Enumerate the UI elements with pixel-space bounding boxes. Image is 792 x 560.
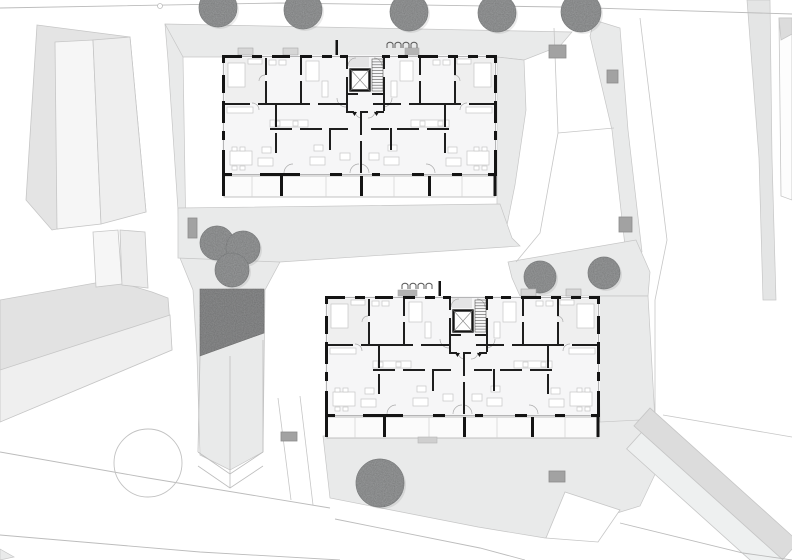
- furniture-item: [467, 151, 489, 165]
- exterior-wall: [485, 296, 493, 299]
- furniture-item: [369, 153, 379, 160]
- exterior-wall: [597, 342, 600, 364]
- furniture-item: [314, 145, 323, 151]
- exterior-wall: [418, 55, 438, 58]
- interior-wall: [362, 111, 368, 113]
- furniture-item: [560, 300, 574, 305]
- interior-wall: [557, 322, 559, 344]
- furniture-item: [491, 386, 500, 392]
- exterior-wall: [222, 75, 225, 93]
- furniture-item: [413, 398, 428, 406]
- interior-wall: [346, 111, 354, 113]
- interior-wall: [444, 105, 446, 127]
- interior-wall: [547, 346, 549, 368]
- interior-wall: [330, 128, 348, 130]
- bench: [549, 471, 565, 482]
- exterior-wall: [325, 342, 328, 364]
- furniture-item: [443, 60, 450, 65]
- building-2: [325, 281, 600, 443]
- furniture-item: [523, 362, 528, 367]
- furniture-item: [577, 304, 594, 328]
- balcony-divider: [222, 176, 225, 196]
- interior-wall: [479, 352, 487, 354]
- interior-wall: [463, 382, 465, 414]
- furniture-item: [446, 158, 461, 166]
- furniture-item: [474, 63, 491, 87]
- exterior-wall: [494, 131, 497, 140]
- furniture-item: [232, 166, 237, 170]
- neighbor-building-left-wing-b: [120, 230, 148, 288]
- exterior-wall: [448, 55, 458, 58]
- furniture-item: [546, 301, 553, 306]
- furniture-item: [382, 301, 389, 306]
- interior-wall: [474, 369, 492, 371]
- exterior-wall: [452, 173, 462, 176]
- exterior-wall: [322, 55, 332, 58]
- interior-wall: [346, 77, 348, 111]
- interior-wall: [463, 352, 465, 376]
- furniture-item: [417, 386, 426, 392]
- furniture-item: [551, 388, 560, 394]
- balcony-divider: [360, 176, 363, 196]
- interior-wall: [346, 58, 348, 69]
- furniture-item: [365, 388, 374, 394]
- entrance-canopy: [566, 289, 581, 296]
- furniture-item: [396, 362, 401, 367]
- furniture-item: [474, 166, 479, 170]
- furniture-item: [443, 394, 453, 401]
- furniture-item: [343, 388, 348, 392]
- interior-wall: [300, 81, 302, 103]
- site-plan-page: [0, 0, 792, 560]
- furniture-item: [577, 388, 582, 392]
- bench: [607, 70, 618, 83]
- exterior-wall: [403, 296, 415, 299]
- entrance-canopy: [398, 290, 417, 296]
- tree: [215, 253, 249, 287]
- balcony-divider: [463, 417, 466, 437]
- furniture-item: [230, 151, 252, 165]
- interior-wall: [275, 133, 277, 153]
- furniture-item: [335, 407, 340, 411]
- interior-wall: [300, 128, 322, 130]
- furniture-item: [585, 407, 590, 411]
- interior-wall: [329, 128, 331, 150]
- furniture-item: [570, 392, 592, 406]
- furniture-item: [409, 302, 422, 322]
- furniture-item: [438, 121, 443, 126]
- interior-wall: [373, 369, 395, 371]
- exterior-wall: [375, 296, 393, 299]
- furniture-item: [466, 107, 492, 113]
- furniture-item: [333, 392, 355, 406]
- furniture-item: [482, 166, 487, 170]
- entrance-canopy: [238, 48, 253, 55]
- exterior-wall: [272, 55, 290, 58]
- furniture-item: [448, 147, 457, 153]
- exterior-wall: [571, 296, 581, 299]
- furniture-item: [400, 61, 413, 81]
- interior-wall: [493, 369, 495, 391]
- exterior-wall: [222, 131, 225, 140]
- interior-wall: [360, 141, 362, 173]
- balcony-divider: [280, 176, 283, 196]
- exterior-wall: [494, 150, 497, 176]
- balcony-band: [224, 176, 495, 197]
- interior-wall: [475, 334, 487, 336]
- interior-wall: [454, 81, 456, 103]
- balcony-doormat: [418, 437, 437, 443]
- exterior-wall: [222, 101, 225, 123]
- furniture-item: [577, 407, 582, 411]
- entrance-canopy: [405, 48, 419, 55]
- furniture-item: [549, 399, 564, 407]
- entrance-canopy: [521, 289, 536, 296]
- interior-wall: [530, 369, 552, 371]
- furniture-item: [388, 145, 397, 151]
- interior-wall: [328, 344, 353, 346]
- exterior-wall: [382, 55, 390, 58]
- exterior-wall: [325, 296, 328, 304]
- furniture-item: [258, 158, 273, 166]
- interior-wall: [454, 58, 456, 75]
- furniture-item: [279, 60, 286, 65]
- exterior-wall: [260, 173, 300, 176]
- furniture-item: [391, 81, 397, 97]
- neighbor-building-far-right: [779, 18, 792, 200]
- interior-wall: [397, 128, 419, 130]
- interior-wall: [465, 352, 471, 354]
- furniture-item: [541, 362, 546, 367]
- tree: [588, 257, 620, 289]
- interior-wall: [275, 105, 277, 127]
- interior-wall: [522, 322, 524, 344]
- exterior-wall: [363, 414, 403, 417]
- exterior-wall: [494, 101, 497, 123]
- interior-wall: [270, 128, 292, 130]
- balcony-divider: [325, 417, 328, 437]
- exterior-wall: [494, 55, 497, 63]
- interior-wall: [376, 111, 384, 113]
- furniture-item: [310, 157, 325, 165]
- furniture-item: [585, 388, 590, 392]
- interior-wall: [421, 344, 449, 346]
- interior-wall: [572, 344, 597, 346]
- interior-wall: [403, 322, 405, 344]
- exterior-wall: [494, 75, 497, 93]
- exterior-wall: [521, 296, 541, 299]
- exterior-wall: [325, 372, 328, 381]
- tree: [356, 459, 404, 507]
- furniture-item: [474, 147, 479, 151]
- interior-wall: [383, 58, 385, 69]
- furniture-item: [536, 301, 543, 306]
- balcony-divider: [494, 176, 497, 196]
- interior-wall: [469, 103, 494, 105]
- exterior-wall: [425, 296, 435, 299]
- furniture-item: [494, 322, 500, 338]
- interior-wall: [419, 81, 421, 103]
- interior-wall: [433, 369, 451, 371]
- exterior-wall: [597, 316, 600, 334]
- furniture-item: [351, 300, 365, 305]
- furniture-item: [240, 147, 245, 151]
- furniture-item: [343, 407, 348, 411]
- furniture-item: [306, 61, 319, 81]
- exterior-wall: [597, 391, 600, 417]
- interior-wall: [361, 344, 413, 346]
- exterior-wall: [355, 296, 365, 299]
- interior-wall: [449, 318, 451, 352]
- interior-wall: [444, 133, 446, 153]
- interior-wall: [378, 374, 380, 394]
- furniture-item: [503, 302, 516, 322]
- exterior-wall: [433, 414, 445, 417]
- interior-wall: [449, 299, 451, 310]
- exterior-wall: [325, 316, 328, 334]
- furniture-item: [420, 121, 425, 126]
- exterior-wall: [597, 372, 600, 381]
- interior-wall: [403, 369, 425, 371]
- exterior-wall: [468, 55, 478, 58]
- furniture-item: [240, 166, 245, 170]
- interior-wall: [360, 111, 362, 135]
- interior-wall: [258, 103, 310, 105]
- bench: [619, 217, 632, 232]
- furniture-item: [293, 121, 298, 126]
- interior-wall: [368, 322, 370, 344]
- interior-wall: [265, 81, 267, 103]
- entrance-canopy: [283, 48, 298, 55]
- furniture-item: [330, 348, 356, 354]
- furniture-item: [487, 398, 502, 406]
- interior-wall: [557, 299, 559, 316]
- furniture-item: [227, 107, 253, 113]
- exterior-wall: [300, 55, 312, 58]
- furniture-item: [384, 157, 399, 165]
- exterior-wall: [398, 55, 408, 58]
- interior-wall: [419, 58, 421, 75]
- exterior-wall: [412, 173, 424, 176]
- bench: [188, 218, 197, 238]
- building-1: [222, 40, 497, 197]
- interior-wall: [372, 93, 384, 95]
- exterior-wall: [443, 296, 451, 299]
- tree: [524, 261, 556, 293]
- furniture-item: [232, 147, 237, 151]
- interior-wall: [409, 103, 461, 105]
- site-plan-canvas: [0, 0, 792, 560]
- exterior-wall: [515, 414, 527, 417]
- interior-wall: [512, 344, 564, 346]
- interior-wall: [547, 374, 549, 394]
- interior-wall: [403, 299, 405, 316]
- furniture-item: [262, 147, 271, 153]
- interior-wall: [486, 299, 488, 310]
- interior-wall: [500, 369, 522, 371]
- bench: [549, 45, 566, 58]
- furniture-item: [472, 394, 482, 401]
- furniture-item: [457, 59, 471, 64]
- exterior-wall: [597, 296, 600, 304]
- interior-wall: [318, 103, 346, 105]
- north-stub-wall: [336, 40, 339, 55]
- exterior-wall: [222, 150, 225, 176]
- exterior-wall: [475, 414, 483, 417]
- site-area-east-of-building2: [598, 296, 655, 424]
- interior-wall: [522, 299, 524, 316]
- exterior-wall: [340, 55, 348, 58]
- interior-wall: [373, 103, 401, 105]
- exterior-wall: [325, 391, 328, 417]
- furniture-item: [482, 147, 487, 151]
- furniture-item: [340, 153, 350, 160]
- interior-wall: [378, 346, 380, 368]
- furniture-item: [331, 304, 348, 328]
- furniture-item: [322, 81, 328, 97]
- interior-wall: [368, 299, 370, 316]
- exterior-wall: [252, 55, 262, 58]
- interior-wall: [476, 344, 504, 346]
- furniture-item: [269, 60, 276, 65]
- balcony-band: [327, 417, 598, 438]
- interior-wall: [449, 352, 457, 354]
- balcony-divider: [531, 417, 534, 437]
- exterior-wall: [551, 296, 561, 299]
- interior-wall: [300, 58, 302, 75]
- interior-wall: [427, 128, 449, 130]
- manhole-circle: [158, 4, 163, 9]
- interior-wall: [265, 58, 267, 75]
- furniture-item: [433, 60, 440, 65]
- balcony-divider: [428, 176, 431, 196]
- balcony-divider: [597, 417, 600, 437]
- furniture-item: [248, 59, 262, 64]
- interior-wall: [390, 128, 392, 150]
- exterior-wall: [372, 173, 380, 176]
- furniture-item: [335, 388, 340, 392]
- interior-wall: [432, 369, 434, 391]
- exterior-wall: [501, 296, 511, 299]
- north-stub-wall: [439, 281, 442, 296]
- furniture-item: [569, 348, 595, 354]
- exterior-wall: [555, 414, 565, 417]
- furniture-item: [425, 322, 431, 338]
- exterior-wall: [222, 55, 225, 63]
- interior-wall: [383, 77, 385, 111]
- balcony-divider: [383, 417, 386, 437]
- furniture-item: [228, 63, 245, 87]
- furniture-item: [372, 301, 379, 306]
- interior-wall: [225, 103, 250, 105]
- neighbor-building-left-wing-a: [93, 230, 122, 287]
- exterior-wall: [330, 173, 342, 176]
- furniture-item: [361, 399, 376, 407]
- interior-wall: [486, 318, 488, 352]
- interior-wall: [371, 128, 389, 130]
- bench: [281, 432, 297, 441]
